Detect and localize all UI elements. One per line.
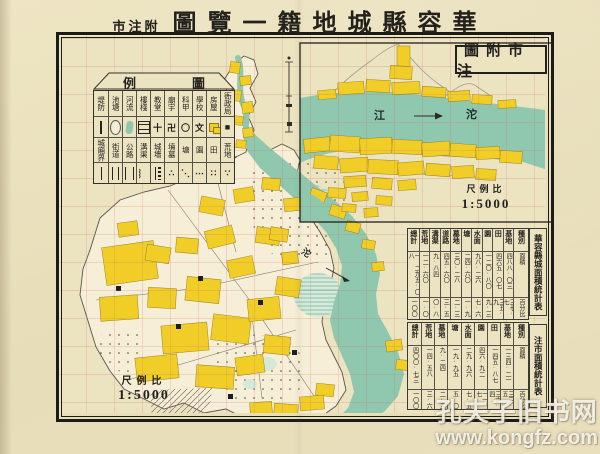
table-cell-text: 一四五·八七: [491, 347, 497, 383]
table-cell-text: 基地: [505, 230, 512, 244]
table-data-cell: 五·〇: [447, 389, 460, 409]
table-cell-text: 二九·九六: [465, 347, 471, 377]
legend-symbol-glyph-icon: ∷: [211, 168, 217, 179]
legend-label-text: 荒地: [224, 143, 232, 158]
table-cell-text: 二·三: [453, 299, 459, 317]
table-cell-text: 三·五: [442, 299, 448, 317]
table-data-cell: 二·三: [434, 389, 447, 409]
table-header-cell: 基地: [500, 323, 513, 345]
legend-symbol-cell-bottom-8: ∷: [206, 162, 220, 183]
legend-label-top-1: 池塘: [108, 91, 122, 116]
legend-label-text: 公路: [126, 143, 134, 158]
legend-symbol-cell-top-6: 〇: [178, 116, 192, 137]
legend-label-bottom-3: 溝渠: [136, 137, 150, 162]
legend-symbol-cell-top-0: [94, 116, 108, 137]
table-cell-text: 一二〇·八〇: [484, 253, 490, 289]
legend-label-text: 科甲: [182, 96, 190, 111]
table-data-cell: 三六·四: [487, 389, 500, 409]
legend-symbol-glyph-icon: ⋯: [195, 168, 204, 179]
table-data-cell: 一二·六〇: [419, 251, 430, 297]
legend-label-text: 園: [196, 146, 204, 154]
table-data-cell: 七·六: [471, 297, 482, 319]
legend-label-text: 學校: [196, 96, 204, 111]
table-cell-text: 九八·二六: [474, 253, 480, 283]
legend-label-bottom-6: 塘: [178, 137, 192, 162]
legend-symbol-glyph-icon: 卍: [167, 121, 176, 134]
table-cell-text: 三七·七: [503, 299, 514, 319]
legend-symbol-cell-bottom-9: ∵: [220, 162, 234, 183]
table-data-cell: 〇·八: [429, 297, 440, 319]
legend-label-text: 田: [210, 146, 218, 154]
legend-label-bottom-9: 荒地: [220, 137, 234, 162]
table-header-cell: 墓地: [450, 229, 461, 251]
legend-symbol-glyph-icon: 〇: [181, 121, 190, 134]
legend-symbol-cell-top-9: ■: [220, 116, 234, 137]
legend-label-top-9: 衙政局: [220, 91, 234, 116]
legend-header-char-left: 例: [123, 73, 136, 92]
table-cell-text: 九·二四: [438, 347, 444, 371]
table-cell-text: 四〇〇·七三: [412, 347, 418, 383]
legend-label-top-0: 堤防: [94, 91, 108, 116]
table-data-cell: 三三·五: [500, 389, 513, 409]
table-header-cell: 塘: [447, 323, 460, 345]
table-cell-text: 荒地: [425, 324, 432, 338]
legend-label-top-5: 廟宇: [164, 91, 178, 116]
legend-symbol-street-icon: [112, 167, 119, 180]
legend-grid: 堤防池塘河流樓棧教堂廟宇科甲學校房屋衙政局十卍〇文■城廂界街道公路溝渠城墻墳墓塘…: [93, 90, 235, 184]
table-cell-text: 百分比: [518, 299, 524, 317]
legend-symbol-glyph-icon: ∴: [169, 168, 175, 179]
legend-symbol-glyph-icon: 十: [153, 121, 162, 134]
legend-label-top-2: 河流: [122, 91, 136, 116]
legend-label-text: 教堂: [154, 96, 162, 111]
table-data-cell: 九·二四: [434, 345, 447, 389]
table-data-cell: 二九·九六: [461, 345, 474, 389]
table-data-cell: 面積: [513, 345, 528, 389]
legend-symbol-cell-top-8: [206, 116, 220, 137]
legend-symbol-pond-icon: [110, 120, 121, 135]
legend-label-top-7: 學校: [192, 91, 206, 116]
legend-symbol-wall-icon: [155, 167, 161, 180]
table-cell-text: 面積: [518, 253, 524, 265]
table-cell-text: 七·六: [474, 299, 480, 317]
table-header-cell: 道路: [440, 229, 451, 251]
table-cell-text: 墓地: [438, 324, 445, 338]
table-cell-text: 二·三: [438, 391, 444, 409]
legend-symbol-cell-top-5: 卍: [164, 116, 178, 137]
table-cell-text: 塘: [451, 324, 458, 331]
table-data-cell: 一·〇: [419, 297, 430, 319]
legend-header: 例 圖: [93, 72, 235, 90]
legend-symbol-river-icon: [125, 120, 134, 134]
legend-label-text: 池塘: [112, 96, 120, 111]
table-data-cell: 一三四·二一: [500, 345, 513, 389]
table-data-cell: 一、二九五·〇八: [408, 251, 419, 297]
legend-header-char-right: 圖: [192, 73, 205, 92]
table-cell-text: 九·八四: [432, 253, 438, 277]
main-scale-value: 1:5000: [102, 388, 186, 404]
table-cell-text: 田: [490, 324, 497, 331]
table-cell-text: 園: [484, 230, 491, 237]
legend-symbol-cell-bottom-5: ∴: [164, 162, 178, 183]
legend-label-text: 廟宇: [168, 96, 176, 111]
table-header-cell: 園: [474, 323, 487, 345]
legend-label-text: 城廂界: [97, 139, 105, 162]
table-data-cell: 一四·五八: [421, 345, 434, 389]
legend-symbol-cell-top-3: [136, 116, 150, 137]
legend-label-text: 街道: [112, 143, 120, 158]
table-data-cell: 四八八·〇三: [503, 251, 514, 297]
legend-label-text: 河流: [126, 96, 134, 111]
table-header-cell: 總計: [408, 229, 419, 251]
legend-symbol-glyph-icon: 文: [195, 121, 204, 134]
legend-symbol-houses-icon: [209, 123, 219, 132]
legend-label-bottom-7: 園: [192, 137, 206, 162]
table-data-cell: 九·三: [482, 297, 493, 319]
table-header-cell: 基地: [503, 229, 514, 251]
table-cell-text: 水面: [464, 324, 471, 338]
table-cell-text: 荒地: [421, 230, 428, 244]
table-cell-text: 一、二九五·〇八: [408, 253, 419, 297]
table-header-cell: 田: [492, 229, 503, 251]
legend-label-text: 房屋: [210, 96, 218, 111]
table-data-cell: 百分比: [513, 297, 528, 319]
legend-symbol-cell-bottom-1: [108, 162, 122, 183]
legend-label-bottom-2: 公路: [122, 137, 136, 162]
table-cell-text: 園: [477, 324, 484, 331]
town-table-title-text: 注市面積統計表: [534, 336, 543, 396]
table-header-cell: 水面: [461, 323, 474, 345]
table-cell-text: 七·五: [465, 391, 471, 409]
inset-scale: 尺例比 1:5000: [448, 182, 524, 212]
table-cell-text: 一九·九五: [451, 347, 457, 377]
table-cell-text: 面積: [518, 347, 524, 359]
table-header-cell: 荒地: [419, 229, 430, 251]
table-cell-text: 三五·九: [492, 299, 503, 319]
legend-symbol-building-icon: [138, 121, 150, 134]
legend-symbol-cell-top-4: 十: [150, 116, 164, 137]
town-area-statistics-table: 總計荒地墓地塘水面園田基地種別四〇〇·七三一四·五八九·二四一九·九五二九·九六…: [407, 322, 529, 410]
table-data-cell: 四〇〇·七三: [408, 345, 421, 389]
city-area-statistics-table-title: 華容縣城面積統計表: [529, 228, 547, 316]
legend-symbol-cell-top-2: [122, 116, 136, 137]
table-data-cell: 三七·七: [503, 297, 514, 319]
legend-label-top-6: 科甲: [178, 91, 192, 116]
legend-label-bottom-0: 城廂界: [94, 137, 108, 162]
table-data-cell: 一二〇·八〇: [482, 251, 493, 297]
table-cell-text: 墓地: [452, 230, 459, 244]
inset-scale-value: 1:5000: [448, 196, 524, 212]
table-cell-text: 溝渠: [431, 230, 438, 244]
table-header-cell: 溝渠: [429, 229, 440, 251]
table-data-cell: 一九·九五: [447, 345, 460, 389]
town-area-statistics-table-title: 注市面積統計表: [529, 324, 547, 408]
legend-label-text: 堤防: [97, 96, 105, 111]
table-data-cell: 七·五: [461, 389, 474, 409]
legend-symbol-boundary-icon: [101, 167, 102, 180]
scanned-map-page: 市注附 圖覽一籍地城縣容華 例 圖 堤防池塘河流樓棧教堂廟宇科甲學校房屋衙政局十…: [0, 0, 600, 454]
table-cell-text: 基地: [503, 324, 510, 338]
table-cell-text: 〇·八: [432, 299, 438, 317]
legend-symbol-cell-bottom-2: [122, 162, 136, 183]
table-data-cell: 一〇〇: [408, 389, 421, 409]
table-data-cell: 三五·九: [492, 297, 503, 319]
table-data-cell: 三·五: [440, 297, 451, 319]
table-cell-text: 三三·五: [501, 391, 513, 409]
legend-symbol-cell-bottom-7: ⋯: [192, 162, 206, 183]
table-data-cell: 一四五·八七: [487, 345, 500, 389]
legend-label-text: 城墻: [154, 143, 162, 158]
table-cell-text: 九·三: [484, 299, 490, 317]
table-data-cell: 四六五·〇七: [492, 251, 503, 297]
table-data-cell: 九·八四: [429, 251, 440, 297]
main-scale-label: 尺例比: [102, 372, 186, 387]
legend-symbol-cell-bottom-4: [150, 162, 164, 183]
legend-symbol-cell-bottom-0: [94, 162, 108, 183]
inset-map-title: 圖附市注: [455, 45, 547, 74]
legend-symbol-cell-top-1: [108, 116, 122, 137]
table-cell-text: 四五·六〇: [442, 253, 448, 283]
legend-symbol-glyph-icon: ■: [225, 122, 230, 132]
table-data-cell: 二四·六〇: [461, 251, 472, 297]
legend-label-text: 衙政局: [224, 92, 232, 115]
table-cell-text: 種別: [518, 324, 525, 338]
map-title: 市注附 圖覽一籍地城縣容華: [0, 3, 600, 38]
table-data-cell: 四六·九二: [474, 345, 487, 389]
table-cell-text: 總計: [411, 324, 418, 338]
table-header-cell: 墓地: [434, 323, 447, 345]
table-cell-text: 三〇·二八: [453, 253, 459, 283]
inset-river-label-jiang: 江: [374, 107, 385, 123]
map-title-annotation: 市注附: [112, 16, 160, 38]
table-cell-text: 一·九: [463, 299, 469, 317]
table-header-cell: 園: [482, 229, 493, 251]
inset-scale-label: 尺例比: [448, 182, 524, 195]
legend-symbol-road-icon: [125, 167, 134, 180]
table-data-cell: 一·九: [461, 297, 472, 319]
table-data-cell: 百分比: [513, 389, 528, 409]
table-cell-text: 二四·六〇: [463, 253, 469, 283]
legend: 例 圖 堤防池塘河流樓棧教堂廟宇科甲學校房屋衙政局十卍〇文■城廂界街道公路溝渠城…: [93, 72, 235, 184]
legend-symbol-cell-bottom-3: ︴: [136, 162, 150, 183]
table-cell-text: 一〇〇: [412, 391, 418, 409]
table-header-cell: 種別: [513, 323, 528, 345]
table-cell-text: 三·六: [425, 391, 431, 409]
table-cell-text: 一四·五八: [425, 347, 431, 377]
legend-label-text: 溝渠: [140, 143, 148, 158]
table-header-cell: 田: [487, 323, 500, 345]
table-header-cell: 種別: [513, 229, 528, 251]
legend-symbol-glyph-icon: ⋱: [181, 168, 190, 179]
table-cell-text: 水面: [473, 230, 480, 244]
table-cell-text: 一·〇: [421, 299, 427, 317]
legend-symbol-dike-icon: [100, 121, 102, 134]
table-header-cell: 塘: [461, 229, 472, 251]
table-header-cell: 荒地: [421, 323, 434, 345]
legend-label-top-8: 房屋: [206, 91, 220, 116]
legend-symbol-glyph-icon: ∵: [225, 168, 231, 179]
map-title-main: 圖覽一籍地城縣容華: [173, 3, 488, 38]
legend-label-bottom-5: 墳墓: [164, 137, 178, 162]
legend-symbol-cell-bottom-6: ⋱: [178, 162, 192, 183]
table-data-cell: 二·三: [450, 297, 461, 319]
inset-river-label-tuo: 沱: [466, 106, 477, 122]
table-data-cell: 一〇〇: [408, 297, 419, 319]
table-cell-text: 五·〇: [451, 391, 457, 409]
table-cell-text: 四六五·〇七: [495, 253, 501, 289]
table-cell-text: 四六·九二: [478, 347, 484, 377]
table-header-cell: 水面: [471, 229, 482, 251]
legend-symbol-cell-top-7: 文: [192, 116, 206, 137]
table-cell-text: 道路: [442, 230, 449, 244]
legend-symbol-glyph-icon: ︴: [139, 167, 148, 180]
table-cell-text: 三六·四: [488, 391, 500, 409]
legend-label-bottom-4: 城墻: [150, 137, 164, 162]
table-cell-text: 一〇〇: [410, 299, 416, 317]
legend-label-bottom-8: 田: [206, 137, 220, 162]
table-data-cell: 四五·六〇: [440, 251, 451, 297]
table-cell-text: 一二·六〇: [421, 253, 427, 283]
main-map-scale: 尺例比 1:5000: [102, 372, 186, 404]
legend-header-banner: [93, 72, 235, 90]
city-area-statistics-table: 總計荒地溝渠道路墓地塘水面園田基地種別一、二九五·〇八一二·六〇九·八四四五·六…: [407, 228, 529, 320]
table-data-cell: 三·六: [421, 389, 434, 409]
legend-label-bottom-1: 街道: [108, 137, 122, 162]
city-table-title-text: 華容縣城面積統計表: [534, 234, 543, 311]
legend-label-top-4: 教堂: [150, 91, 164, 116]
table-cell-text: 一一·七: [475, 391, 487, 409]
legend-label-text: 塘: [182, 146, 190, 154]
table-cell-text: 塘: [463, 230, 470, 237]
table-cell-text: 田: [494, 230, 501, 237]
table-cell-text: 百分比: [518, 391, 524, 409]
legend-label-top-3: 樓棧: [136, 91, 150, 116]
table-data-cell: 面積: [513, 251, 528, 297]
legend-label-text: 墳墓: [168, 143, 176, 158]
table-data-cell: 九八·二六: [471, 251, 482, 297]
table-data-cell: 一一·七: [474, 389, 487, 409]
table-cell-text: 總計: [410, 230, 417, 244]
table-cell-text: 種別: [518, 230, 525, 244]
table-header-cell: 總計: [408, 323, 421, 345]
table-cell-text: 一三四·二一: [504, 347, 510, 383]
table-cell-text: 四八八·〇三: [505, 253, 511, 289]
legend-label-text: 樓棧: [140, 96, 148, 111]
table-data-cell: 三〇·二八: [450, 251, 461, 297]
